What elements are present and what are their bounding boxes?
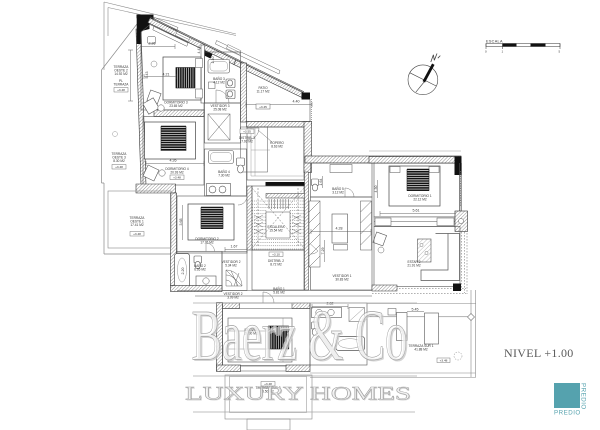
svg-text:4.40: 4.40 <box>293 100 300 104</box>
svg-text:4.21: 4.21 <box>163 73 170 77</box>
svg-text:5.81 M2: 5.81 M2 <box>273 291 285 295</box>
svg-text:+3.10: +3.10 <box>272 253 280 257</box>
svg-text:TERRAZA: TERRAZA <box>114 83 130 87</box>
svg-text:20.93 M2: 20.93 M2 <box>170 171 184 175</box>
svg-text:7.29: 7.29 <box>321 248 325 255</box>
svg-text:41.88 M2: 41.88 M2 <box>414 348 428 352</box>
svg-text:ESCALA: ESCALA <box>486 40 503 44</box>
svg-text:4.43: 4.43 <box>197 47 201 54</box>
svg-text:7.30 M2: 7.30 M2 <box>218 174 230 178</box>
svg-text:+3.48: +3.48 <box>115 165 123 169</box>
svg-text:14.92 M2: 14.92 M2 <box>114 72 128 76</box>
svg-text:4.28: 4.28 <box>336 227 343 231</box>
svg-text:+3.48: +3.48 <box>440 359 448 363</box>
svg-text:25.08 M2: 25.08 M2 <box>213 108 227 112</box>
svg-text:LUXURY HOMES: LUXURY HOMES <box>185 384 411 405</box>
svg-text:+3.48: +3.48 <box>173 176 181 180</box>
svg-text:NIVEL +1.00: NIVEL +1.00 <box>504 346 574 360</box>
svg-text:2.26: 2.26 <box>149 42 156 46</box>
svg-text:1.67: 1.67 <box>231 245 238 249</box>
svg-text:1.64: 1.64 <box>319 179 323 186</box>
svg-text:17.76 M2: 17.76 M2 <box>200 241 214 245</box>
svg-text:11.17 M2: 11.17 M2 <box>256 90 269 94</box>
svg-text:8.63 M2: 8.63 M2 <box>271 145 283 149</box>
svg-text:+3.55: +3.55 <box>243 130 251 134</box>
svg-text:5.34 M2: 5.34 M2 <box>225 264 237 268</box>
svg-text:5.45: 5.45 <box>412 308 419 312</box>
svg-text:PREDIO: PREDIO <box>580 383 587 410</box>
svg-text:3.68: 3.68 <box>179 219 183 226</box>
svg-text:1.10: 1.10 <box>211 57 215 64</box>
svg-text:6.65 M2: 6.65 M2 <box>194 268 206 272</box>
svg-text:22.12 M2: 22.12 M2 <box>413 198 427 202</box>
svg-text:8.72 M2: 8.72 M2 <box>270 263 282 267</box>
svg-text:3.12 M2: 3.12 M2 <box>332 191 344 195</box>
svg-text:+3.45: +3.45 <box>259 105 267 109</box>
svg-text:4.26: 4.26 <box>170 159 177 163</box>
svg-text:+3.48: +3.48 <box>133 232 141 236</box>
svg-text:5.43: 5.43 <box>145 72 149 79</box>
svg-text:PREDIO: PREDIO <box>554 410 581 417</box>
svg-text:4.12 M2: 4.12 M2 <box>213 81 225 85</box>
svg-text:5.61: 5.61 <box>413 209 420 213</box>
svg-text:Baerz & Co: Baerz & Co <box>192 296 408 376</box>
svg-text:8.30 M2: 8.30 M2 <box>113 159 125 163</box>
svg-text:4.30: 4.30 <box>374 186 378 193</box>
svg-text:15.54 M2: 15.54 M2 <box>269 229 283 233</box>
svg-text:30.83 M2: 30.83 M2 <box>335 278 349 282</box>
svg-text:23.65 M2: 23.65 M2 <box>169 104 183 108</box>
svg-text:21.91 M2: 21.91 M2 <box>407 264 421 268</box>
svg-text:7.93 M2: 7.93 M2 <box>241 140 253 144</box>
svg-text:+3.48: +3.48 <box>117 88 125 92</box>
svg-text:17.41 M2: 17.41 M2 <box>130 223 144 227</box>
svg-text:2.20: 2.20 <box>181 268 185 275</box>
